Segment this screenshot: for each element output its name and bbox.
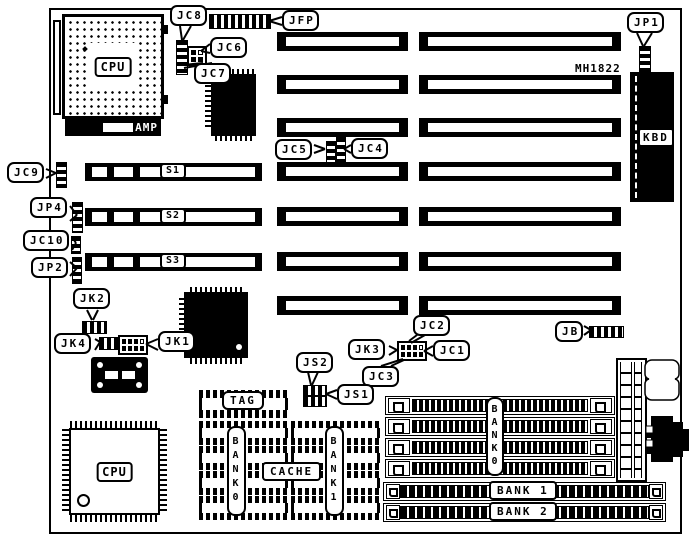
motherboard-diagram: CPU AMP S1 S2 S3 MH1822 bbox=[0, 0, 689, 541]
pin bbox=[134, 339, 138, 344]
slot-s1-label: S1 bbox=[160, 163, 186, 179]
pin bbox=[128, 346, 132, 351]
callout-jp2: JP2 bbox=[31, 257, 68, 278]
callout-jc6: JC6 bbox=[210, 37, 247, 58]
callout-js2: JS2 bbox=[296, 352, 333, 373]
qfp2-pins-bottom bbox=[190, 358, 242, 364]
isa-slot-r3-left bbox=[277, 118, 408, 137]
cpu-qfp-chip: CPU bbox=[69, 428, 160, 515]
cache-bank1-label: BANK1 bbox=[325, 426, 344, 516]
pin-open bbox=[140, 339, 144, 344]
pin bbox=[128, 339, 132, 344]
callout-jk2: JK2 bbox=[73, 288, 110, 309]
simm-bank0-label: BANK0 bbox=[486, 397, 504, 476]
kbd-chip-label: KBD bbox=[638, 128, 674, 147]
pin1-marker bbox=[82, 46, 88, 52]
jk1-jumper-block bbox=[118, 335, 148, 355]
cpu-socket-label: CPU bbox=[95, 57, 132, 77]
qfp2-pin1-dot bbox=[236, 344, 242, 350]
oscillator-module bbox=[91, 357, 148, 393]
callout-jc5: JC5 bbox=[275, 139, 312, 160]
js2-jumper bbox=[303, 385, 327, 396]
jc123-jumper-block bbox=[397, 341, 427, 361]
callout-jc2: JC2 bbox=[413, 315, 450, 336]
cpu2-pins-bottom bbox=[70, 515, 159, 522]
bank1-label: BANK 1 bbox=[489, 481, 557, 500]
isa-slot-r6-left bbox=[277, 252, 408, 271]
isa-slot-r7-right bbox=[419, 296, 621, 315]
socket-tab bbox=[164, 25, 168, 34]
callout-jp4: JP4 bbox=[30, 197, 67, 218]
isa-slot-r7-left bbox=[277, 296, 408, 315]
callout-jc8: JC8 bbox=[170, 5, 207, 26]
amp-label: AMP bbox=[135, 121, 158, 134]
callout-jp1: JP1 bbox=[627, 12, 664, 33]
pin bbox=[191, 50, 196, 55]
power-pins-left bbox=[620, 362, 632, 478]
cpu2-pin1-marker bbox=[77, 494, 90, 507]
power-connector bbox=[616, 358, 647, 482]
slot-s3-label: S3 bbox=[160, 253, 186, 269]
amp-window bbox=[103, 123, 133, 132]
model-number: MH1822 bbox=[575, 62, 621, 75]
callout-jc10: JC10 bbox=[23, 230, 69, 251]
cpu2-pins-right bbox=[160, 429, 167, 514]
cpu2-pins-top bbox=[70, 421, 159, 428]
cpu-qfp-label: CPU bbox=[96, 462, 133, 482]
jc9-jumper bbox=[56, 162, 67, 188]
jc4-jumper bbox=[336, 137, 346, 163]
isa-slot-r2-left bbox=[277, 75, 408, 94]
callout-jc9: JC9 bbox=[7, 162, 44, 183]
kbd-chip-notch-line bbox=[635, 76, 637, 198]
slot-s2-label: S2 bbox=[160, 208, 186, 224]
jp2-jumper bbox=[72, 257, 82, 284]
cache-bank0-label: BANK0 bbox=[227, 426, 246, 516]
jb-connector bbox=[589, 326, 624, 338]
callout-jk3: JK3 bbox=[348, 339, 385, 360]
cpu2-pins-left bbox=[62, 429, 69, 514]
callout-jc7: JC7 bbox=[194, 63, 231, 84]
bank2-label: BANK 2 bbox=[489, 502, 557, 521]
zif-lever bbox=[53, 20, 61, 115]
jp1-jumper bbox=[639, 46, 651, 73]
jp4-jumper bbox=[72, 202, 83, 233]
pin bbox=[191, 57, 196, 62]
callout-jb: JB bbox=[555, 321, 583, 342]
callout-jk1: JK1 bbox=[158, 331, 195, 352]
cpu-socket: CPU bbox=[62, 14, 164, 119]
isa-slot-r1-left bbox=[277, 32, 408, 51]
callout-jc1: JC1 bbox=[433, 340, 470, 361]
tag-label: TAG bbox=[222, 391, 264, 410]
isa-slot-r4-right bbox=[419, 162, 621, 181]
pin bbox=[407, 345, 411, 350]
pin bbox=[134, 346, 138, 351]
isa-slot-r5-right bbox=[419, 207, 621, 226]
js1-jumper bbox=[303, 396, 327, 407]
amp-connector-bar: AMP bbox=[65, 119, 161, 136]
callout-jk4: JK4 bbox=[54, 333, 91, 354]
pin bbox=[413, 352, 417, 357]
pin bbox=[419, 352, 423, 357]
pin bbox=[122, 346, 126, 351]
cache-label: CACHE bbox=[262, 462, 321, 481]
power-pins-right bbox=[634, 362, 642, 478]
callout-js1: JS1 bbox=[337, 384, 374, 405]
pin bbox=[140, 346, 144, 351]
jk4-jumper bbox=[99, 337, 120, 350]
jc5-jumper bbox=[326, 141, 336, 163]
qfp1-pins-bottom bbox=[215, 136, 253, 141]
isa-slot-r4-left bbox=[277, 162, 408, 181]
pin bbox=[413, 345, 417, 350]
pin-open bbox=[419, 345, 423, 350]
callout-jfp: JFP bbox=[282, 10, 319, 31]
pin bbox=[401, 345, 405, 350]
pin bbox=[401, 352, 405, 357]
isa-slot-r5-left bbox=[277, 207, 408, 226]
socket-tab bbox=[164, 95, 168, 104]
jfp-connector bbox=[209, 14, 271, 29]
jk2-jumper bbox=[82, 321, 107, 334]
pin bbox=[198, 57, 203, 62]
isa-slot-r1-right bbox=[419, 32, 621, 51]
callout-jc4: JC4 bbox=[351, 138, 388, 159]
pin bbox=[407, 352, 411, 357]
pin bbox=[122, 339, 126, 344]
isa-slot-r2-right bbox=[419, 75, 621, 94]
pin-open bbox=[198, 50, 203, 55]
isa-slot-r6-right bbox=[419, 252, 621, 271]
isa-slot-r3-right bbox=[419, 118, 621, 137]
jc10-jumper bbox=[71, 236, 81, 254]
